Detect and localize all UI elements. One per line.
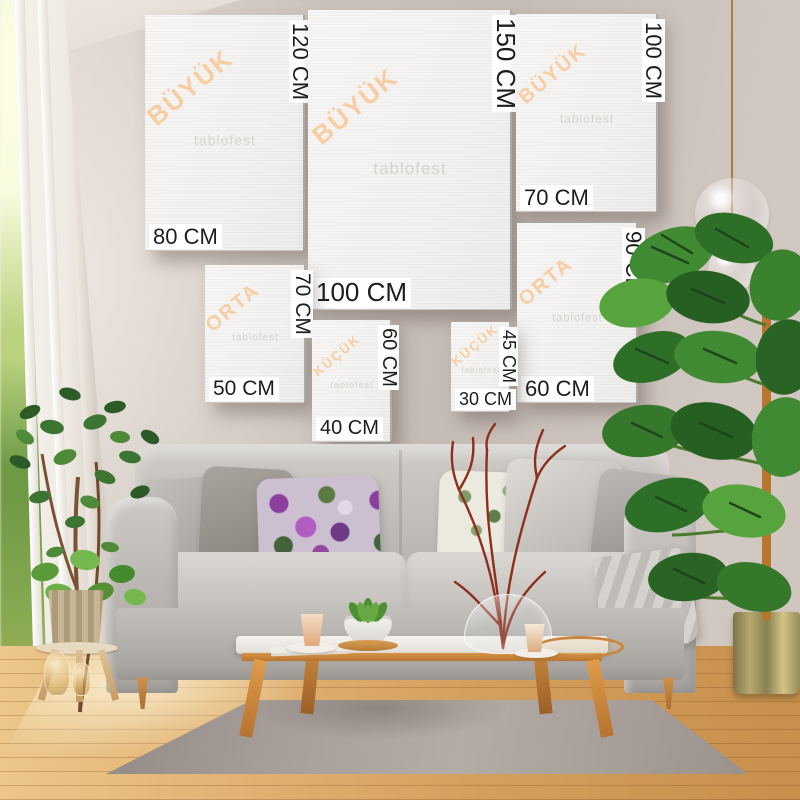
size-category-label: ORTA [202,280,265,338]
canvas-frame-80x120: BÜYÜK 120 CM 80 CM tablofest [145,15,305,251]
height-dimension-label: 70 CM [291,270,313,338]
width-dimension-label: 50 CM [209,377,279,401]
size-category-label: ORTA [514,253,577,311]
woven-basket-planter [46,590,106,650]
canvas-frame-40x60: KÜÇÜK 60 CM 40 CM tablofest [312,320,392,442]
wood-trivet [338,640,398,651]
width-dimension-label: 30 CM [455,389,516,410]
succulent-plant [340,594,396,622]
table-shadow [250,700,510,740]
size-category-label: KÜÇÜK [449,321,502,369]
size-category-label: BÜYÜK [306,62,404,152]
width-dimension-label: 70 CM [520,185,593,210]
size-category-label: KÜÇÜK [310,332,363,380]
height-dimension-label: 150 CM [492,15,519,112]
watermark: tablofest [373,159,446,179]
canvas-frame-50x70: ORTA 70 CM 50 CM tablofest [205,265,306,403]
watermark: tablofest [461,365,500,374]
width-dimension-label: 40 CM [316,417,383,440]
amber-glass-vase [44,652,70,696]
amber-glass-vase [72,662,91,696]
watermark: tablofest [194,132,256,148]
height-dimension-label: 100 CM [642,19,665,102]
watermark: tablofest [552,312,603,324]
canvas-frame-70x100: BÜYÜK 100 CM 70 CM tablofest [516,14,658,212]
watermark: tablofest [560,112,614,126]
height-dimension-label: 45 CM [499,327,518,386]
width-dimension-label: 80 CM [149,224,222,249]
size-category-label: BÜYÜK [514,40,591,110]
size-category-label: BÜYÜK [141,42,239,132]
canvas-frame-30x45: KÜÇÜK 45 CM 30 CM tablofest [451,322,511,412]
width-dimension-label: 60 CM [521,376,594,401]
monstera-plant [612,205,800,695]
canvas-frame-100x150: BÜYÜK 150 CM 100 CM tablofest [308,10,512,310]
watermark: tablofest [232,333,279,344]
watermark: tablofest [330,380,373,390]
width-dimension-label: 100 CM [312,278,411,308]
living-room-scene: BÜYÜK 120 CM 80 CM tablofest BÜYÜK 150 C… [0,0,800,800]
height-dimension-label: 60 CM [378,325,399,390]
